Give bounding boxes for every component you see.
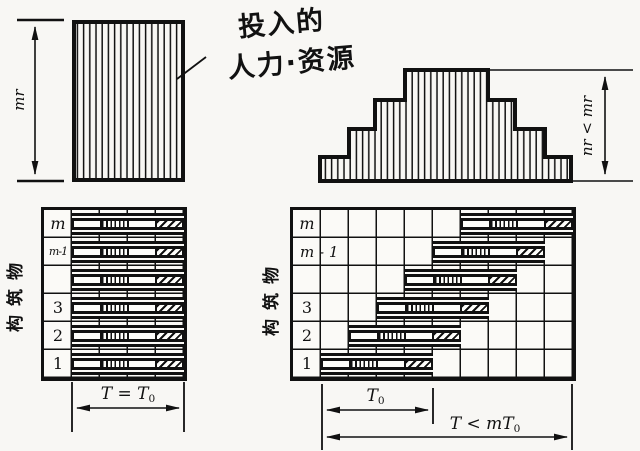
bar-bottom-rule	[72, 316, 184, 319]
bar-segment-plain	[74, 221, 100, 227]
bar-segment-plain	[127, 361, 155, 367]
gantt-bar	[72, 269, 184, 291]
bar-segment-hatch	[155, 361, 183, 367]
bar-segment-plain	[323, 361, 349, 367]
axis-label-structures-right: 构筑物	[261, 237, 283, 357]
bar-segment-plain	[379, 305, 405, 311]
bar-bottom-rule	[377, 316, 489, 319]
bar-body	[72, 274, 184, 286]
bar-top-rule	[377, 297, 489, 300]
bar-bottom-rule	[321, 372, 433, 375]
bar-body	[461, 218, 573, 230]
bar-segment-plain	[351, 333, 377, 339]
cycle-duration-sub: 0	[378, 395, 385, 407]
bar-segment-stripes	[405, 305, 433, 311]
bar-segment-plain	[127, 221, 155, 227]
bar-top-rule	[405, 269, 517, 272]
bar-body	[349, 330, 461, 342]
bar-segment-plain	[74, 249, 100, 255]
stepped-resource-block	[320, 70, 571, 181]
bar-segment-hatch	[460, 305, 488, 311]
bar-bottom-rule	[433, 260, 545, 263]
bar-segment-stripes	[377, 333, 405, 339]
bar-segment-stripes	[489, 221, 517, 227]
row-label-m-1: m-1	[44, 238, 72, 266]
bar-segment-plain	[127, 305, 155, 311]
bar-segment-plain	[488, 249, 516, 255]
bar-body	[405, 274, 517, 286]
total-duration-label: T < mT0	[402, 414, 568, 435]
nr-dimension-label: nr < mr	[576, 66, 598, 186]
gantt-bar	[433, 241, 545, 263]
total-duration-sub: 0	[514, 423, 521, 435]
bar-segment-hatch	[516, 249, 544, 255]
bar-segment-stripes	[100, 361, 128, 367]
bar-segment-hatch	[488, 277, 516, 283]
row-label-2: 2	[293, 322, 321, 350]
left-duration-sub: 0	[149, 393, 156, 405]
bar-bottom-rule	[72, 288, 184, 291]
left-gantt-rows: mm-1321	[44, 210, 184, 378]
row-label-2: 2	[44, 322, 72, 350]
bar-bottom-rule	[72, 260, 184, 263]
bar-segment-hatch	[155, 333, 183, 339]
cycle-duration-label: T0	[322, 386, 429, 407]
bar-top-rule	[72, 297, 184, 300]
left-duration-text: T = T	[101, 384, 149, 404]
bar-body	[72, 358, 184, 370]
gantt-bar	[72, 325, 184, 347]
bar-top-rule	[461, 213, 573, 216]
bar-segment-stripes	[433, 277, 461, 283]
row-label-m: m	[293, 210, 321, 238]
bar-bottom-rule	[72, 344, 184, 347]
bar-bottom-rule	[72, 372, 184, 375]
bar-segment-plain	[127, 277, 155, 283]
row-label-1: 1	[293, 350, 321, 378]
bar-bottom-rule	[461, 232, 573, 235]
gantt-bar	[405, 269, 517, 291]
left-duration-label: T = T0	[72, 384, 184, 405]
bar-segment-plain	[460, 277, 488, 283]
mr-dimension-label: mr	[8, 40, 30, 160]
gantt-bar	[377, 297, 489, 319]
bar-top-rule	[349, 325, 461, 328]
bar-segment-stripes	[100, 221, 128, 227]
row-label-1: 1	[44, 350, 72, 378]
gantt-bar	[321, 353, 433, 375]
bar-segment-plain	[376, 361, 404, 367]
bar-segment-plain	[127, 333, 155, 339]
bar-body	[72, 246, 184, 258]
bar-segment-hatch	[155, 249, 183, 255]
bar-segment-plain	[435, 249, 461, 255]
bar-segment-plain	[404, 333, 432, 339]
uniform-resource-block	[74, 22, 183, 180]
bar-segment-plain	[516, 221, 544, 227]
gantt-bar	[72, 353, 184, 375]
bar-body	[72, 330, 184, 342]
row-label-3: 3	[44, 294, 72, 322]
bar-segment-plain	[463, 221, 489, 227]
bar-segment-plain	[74, 277, 100, 283]
bar-bottom-rule	[405, 288, 517, 291]
bar-top-rule	[72, 325, 184, 328]
bar-segment-stripes	[100, 249, 128, 255]
axis-label-structures-left: 构筑物	[5, 233, 27, 353]
bar-segment-stripes	[349, 361, 377, 367]
bar-body	[433, 246, 545, 258]
bar-top-rule	[433, 241, 545, 244]
bar-body	[72, 218, 184, 230]
gantt-bar	[461, 213, 573, 235]
row-label-3: 3	[293, 294, 321, 322]
gantt-bar	[349, 325, 461, 347]
bar-segment-plain	[407, 277, 433, 283]
bar-segment-hatch	[155, 277, 183, 283]
bar-segment-hatch	[155, 305, 183, 311]
bar-segment-plain	[74, 333, 100, 339]
bar-body	[321, 358, 433, 370]
bar-segment-hatch	[544, 221, 572, 227]
bar-body	[377, 302, 489, 314]
bar-segment-plain	[74, 361, 100, 367]
figure-canvas: mr nr < mr 投入的 人力·资源 mm-1321 mm - 1321 构…	[0, 0, 640, 451]
bar-bottom-rule	[349, 344, 461, 347]
gantt-bar	[72, 213, 184, 235]
bar-top-rule	[72, 353, 184, 356]
bar-segment-plain	[74, 305, 100, 311]
bar-top-rule	[72, 213, 184, 216]
bar-segment-stripes	[100, 333, 128, 339]
row-label-m-1: m - 1	[293, 238, 349, 266]
row-label-m: m	[44, 210, 72, 238]
bar-bottom-rule	[72, 232, 184, 235]
handwritten-annotation: 投入的 人力·资源	[223, 0, 358, 89]
bar-segment-plain	[432, 305, 460, 311]
cycle-duration-text: T	[366, 386, 377, 406]
bar-segment-stripes	[100, 277, 128, 283]
bar-top-rule	[72, 269, 184, 272]
bar-segment-hatch	[432, 333, 460, 339]
right-gantt-rows: mm - 1321	[293, 210, 573, 378]
bar-segment-plain	[127, 249, 155, 255]
bar-top-rule	[321, 353, 433, 356]
gantt-bar	[72, 241, 184, 263]
bar-body	[72, 302, 184, 314]
bar-segment-hatch	[404, 361, 432, 367]
total-duration-text: T < mT	[450, 414, 514, 434]
bar-segment-stripes	[461, 249, 489, 255]
bar-top-rule	[72, 241, 184, 244]
gantt-bar	[72, 297, 184, 319]
bar-segment-hatch	[155, 221, 183, 227]
bar-segment-stripes	[100, 305, 128, 311]
